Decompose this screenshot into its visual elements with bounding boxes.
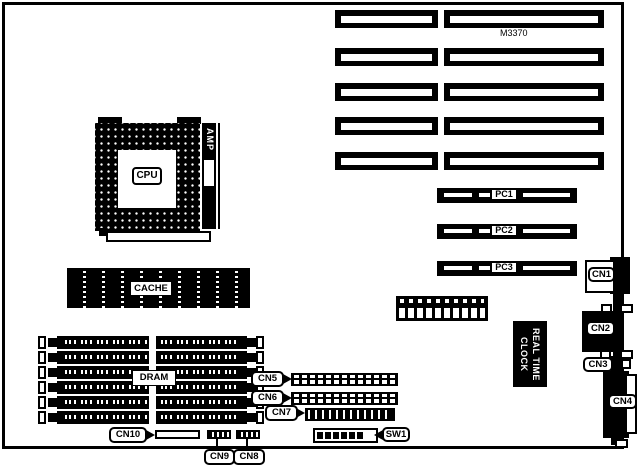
simm-clip <box>48 383 57 392</box>
amp-label: AMP <box>204 128 214 151</box>
slot-opening <box>444 193 472 197</box>
simm-notch <box>149 351 156 364</box>
slot-opening <box>450 123 598 130</box>
slot-opening <box>450 16 598 23</box>
cpu-retainer-bar <box>106 231 211 242</box>
simm-end-cap <box>38 411 46 424</box>
connector-label-cn5: CN5 <box>251 371 284 387</box>
isa-slot-segment <box>444 117 604 135</box>
isa-slot-segment <box>335 48 438 66</box>
simm-slot <box>57 396 247 409</box>
connector-label-cn9: CN9 <box>204 449 235 465</box>
simm-end-cap <box>38 336 46 349</box>
slot-opening <box>341 16 432 23</box>
slot-opening <box>341 89 432 96</box>
dip-switch-sw1 <box>313 428 378 443</box>
mount-tab <box>620 304 633 313</box>
simm-clip <box>48 413 57 422</box>
board-model-label: M3370 <box>500 29 528 38</box>
pin-grid <box>294 375 395 384</box>
isa-slot-segment <box>444 152 604 170</box>
switch-blocks <box>317 432 364 439</box>
mount-tab <box>621 359 631 369</box>
slot-opening <box>444 229 472 233</box>
simm-slot <box>57 336 247 349</box>
isa-slot-segment <box>335 83 438 101</box>
isa-slot-segment <box>335 117 438 135</box>
isa-slot-segment <box>335 10 438 28</box>
simm-end-cap <box>38 396 46 409</box>
simm-clip <box>48 368 57 377</box>
slot-opening <box>341 158 432 165</box>
simm-slot <box>57 351 247 364</box>
pci-slot: PC3 <box>437 261 577 276</box>
pci-slot-label: PC2 <box>490 224 518 237</box>
simm-clip <box>48 353 57 362</box>
simm-end-cap <box>256 411 264 424</box>
slot-opening <box>341 123 432 130</box>
connector-label-cn10: CN10 <box>109 427 147 443</box>
motherboard-diagram: M3370 PC1 PC2 PC3 CPU AMP CACHE <box>0 0 638 466</box>
isa-slot-segment <box>335 152 438 170</box>
connector-cn9 <box>207 430 231 439</box>
connector-label-cn4: CN4 <box>608 394 637 409</box>
simm-end-cap <box>38 381 46 394</box>
simm-end-cap <box>256 351 264 364</box>
arrow-right-icon <box>146 430 155 440</box>
connector-cn10 <box>155 430 200 439</box>
arrow-right-icon <box>283 374 292 384</box>
isa-slot-segment <box>444 83 604 101</box>
pin-grid <box>294 394 395 403</box>
cache-label: CACHE <box>130 281 172 296</box>
connector-cn7 <box>305 408 395 421</box>
connector-cn5 <box>291 373 398 386</box>
pin-row <box>399 308 485 318</box>
arrow-right-icon <box>283 393 292 403</box>
mount-tab <box>615 439 628 448</box>
connector-cn8 <box>236 430 260 439</box>
simm-notch <box>149 336 156 349</box>
simm-clip <box>247 413 256 422</box>
simm-end-cap <box>38 351 46 364</box>
pci-slot-label: PC3 <box>490 261 518 274</box>
simm-clip <box>247 353 256 362</box>
isa-slot-segment <box>444 48 604 66</box>
switch-label-sw1: SW1 <box>382 427 410 442</box>
real-time-clock-chip: REAL TIME CLOCK <box>513 321 547 387</box>
simm-clip <box>48 338 57 347</box>
slot-opening <box>523 229 570 233</box>
amp-socket: AMP <box>202 123 216 229</box>
slot-opening <box>444 266 472 270</box>
isa-slot-segment <box>444 10 604 28</box>
pin-row <box>400 299 484 303</box>
simm-clip <box>48 398 57 407</box>
simm-clip <box>247 338 256 347</box>
pin-row <box>308 410 392 419</box>
rtc-label: REAL TIME CLOCK <box>518 328 542 381</box>
pci-slot: PC2 <box>437 224 577 239</box>
cpu-label: CPU <box>132 167 162 185</box>
simm-end-cap <box>38 366 46 379</box>
slot-opening <box>450 54 598 61</box>
slot-opening <box>341 54 432 61</box>
connector-cn6 <box>291 392 398 405</box>
simm-slot <box>57 411 247 424</box>
amp-socket-edge <box>218 123 220 229</box>
pin-row <box>238 432 258 437</box>
pci-slot-label: PC1 <box>490 188 518 201</box>
pin-row <box>209 432 229 437</box>
connector-label-cn2: CN2 <box>586 321 615 336</box>
power-connector <box>396 296 488 321</box>
simm-notch <box>149 396 156 409</box>
simm-end-cap <box>256 336 264 349</box>
connector-label-cn7: CN7 <box>265 405 298 421</box>
dram-label: DRAM <box>132 370 176 386</box>
slot-opening <box>523 193 570 197</box>
slot-opening <box>450 89 598 96</box>
pci-slot: PC1 <box>437 188 577 203</box>
slot-opening <box>450 158 598 165</box>
connector-label-cn1: CN1 <box>588 267 615 282</box>
simm-notch <box>149 411 156 424</box>
arrow-right-icon <box>296 408 305 418</box>
connector-label-cn8: CN8 <box>233 449 265 465</box>
connector-label-cn3: CN3 <box>583 357 613 372</box>
slot-opening <box>523 266 570 270</box>
connector-label-cn6: CN6 <box>251 390 284 406</box>
